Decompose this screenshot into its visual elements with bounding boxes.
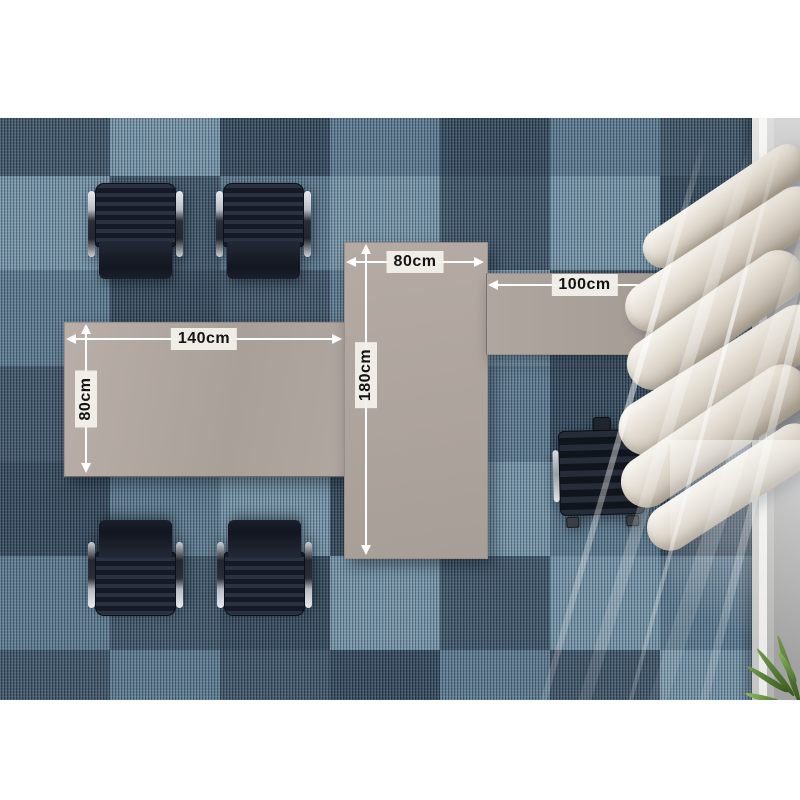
room-photo: 140cm 80cm 80cm 180cm 100cm — [0, 118, 800, 700]
arrowhead-up-icon — [670, 275, 680, 285]
dimension-label: 100cm — [551, 274, 617, 296]
dimension-left-desk-width: 140cm — [66, 329, 342, 349]
potted-plant-leaves — [748, 611, 800, 700]
chair-seat — [228, 520, 301, 558]
dimension-center-desk-length: 180cm — [356, 244, 376, 555]
plant-leaf — [745, 691, 785, 700]
chair-armrest — [88, 191, 95, 257]
arrowhead-down-icon — [361, 545, 371, 555]
arrowhead-right-icon — [474, 257, 484, 267]
dimension-label: 40cm — [664, 285, 686, 342]
dimension-left-desk-depth: 80cm — [76, 324, 96, 473]
office-chair-top-right — [216, 183, 311, 279]
arrowhead-up-icon — [361, 244, 371, 254]
chair-seat — [99, 241, 172, 279]
dimension-label: 80cm — [75, 370, 97, 427]
chair-backrest — [95, 552, 176, 616]
executive-chair — [552, 416, 652, 529]
office-chair-bottom-left — [88, 520, 183, 616]
chair-seat — [99, 520, 172, 558]
arrowhead-left-icon — [346, 257, 356, 267]
product-image: 140cm 80cm 80cm 180cm 100cm — [0, 0, 800, 800]
chair-armrest — [216, 191, 223, 257]
office-chair-top-left — [88, 183, 183, 279]
chair-armrest — [88, 542, 95, 608]
arrowhead-down-icon — [81, 463, 91, 473]
chair-caster — [626, 515, 639, 526]
arrowhead-left-icon — [66, 334, 76, 344]
chair-caster — [566, 517, 579, 528]
dimension-label: 80cm — [387, 251, 444, 273]
chair-backrest — [223, 183, 304, 247]
chair-backrest — [224, 552, 305, 616]
chair-backrest — [95, 183, 176, 247]
chair-seat — [227, 241, 300, 279]
office-chair-bottom-right — [217, 520, 312, 616]
dimension-side-desk-depth: 40cm — [665, 275, 685, 351]
arrowhead-up-icon — [81, 324, 91, 334]
chair-armrest — [304, 191, 311, 257]
arrowhead-right-icon — [332, 334, 342, 344]
arrowhead-left-icon — [488, 280, 498, 290]
chair-armrest — [217, 542, 224, 608]
chair-armrest — [305, 542, 312, 608]
chair-ribbed-body — [558, 429, 645, 516]
dimension-label: 140cm — [171, 328, 237, 350]
chair-armrest — [176, 191, 183, 257]
dimension-label: 180cm — [355, 341, 377, 407]
chair-armrest — [176, 542, 183, 608]
arrowhead-down-icon — [670, 341, 680, 351]
dimension-side-desk-width: 100cm — [488, 275, 681, 295]
